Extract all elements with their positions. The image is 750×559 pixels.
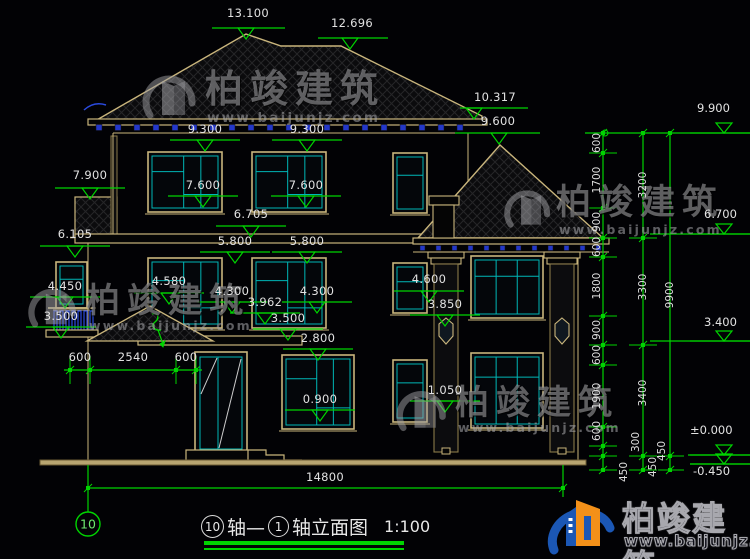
level-label: 5.800 [218, 236, 252, 248]
level-label: 13.100 [227, 8, 269, 20]
level-label: 4.600 [412, 274, 446, 286]
dim-label: 3300 [638, 274, 649, 301]
title-text: 轴立面图 [292, 513, 368, 540]
level-label: 7.900 [73, 170, 107, 182]
level-label: 1.050 [428, 385, 462, 397]
dim-label: 1700 [592, 167, 603, 194]
dim-label: 600 [592, 421, 603, 441]
level-label: 3.500 [271, 313, 305, 325]
level-label: ±0.000 [690, 425, 733, 437]
level-label: 9.600 [481, 116, 515, 128]
level-label: 3.850 [428, 299, 462, 311]
level-label: 9.300 [188, 124, 222, 136]
level-label: 5.800 [290, 236, 324, 248]
axis-circle-1: 1 [268, 516, 289, 537]
title-underline [204, 541, 404, 545]
level-label: 10.317 [474, 92, 516, 104]
dim-label: 450 [648, 457, 659, 477]
dim-label: 1800 [592, 273, 603, 300]
level-label: 7.600 [186, 180, 220, 192]
level-label: 6.105 [58, 229, 92, 241]
company-logo-url: www.baijunjz.com [624, 532, 750, 550]
level-label: 3.400 [704, 317, 737, 329]
level-label: 0.900 [303, 394, 337, 406]
dim-label: 600 [592, 237, 603, 257]
level-label: 3.962 [248, 297, 282, 309]
dim-label: 3200 [638, 172, 649, 199]
title-scale: 1:100 [384, 517, 430, 536]
level-label: 9.900 [697, 103, 730, 115]
level-label: 6.700 [704, 209, 737, 221]
axis-circle-10: 10 [201, 515, 224, 538]
level-label: 9.300 [290, 124, 324, 136]
level-label: 12.696 [331, 18, 373, 30]
dim-label: 1900 [592, 383, 603, 410]
axis-bubble-number: 10 [80, 517, 96, 532]
level-label: 4.580 [152, 276, 186, 288]
dim-label: 600 [175, 352, 198, 364]
dim-label: 900 [592, 320, 603, 340]
dim-label: 3400 [638, 380, 649, 407]
level-label: 4.450 [48, 281, 82, 293]
level-label: 3.500 [44, 311, 78, 323]
level-label: 2.800 [301, 333, 335, 345]
dim-label: 9900 [665, 282, 676, 309]
title-underline [204, 548, 404, 550]
dim-label: 450 [619, 462, 630, 482]
dim-label: 900 [592, 212, 603, 232]
dim-label: 600 [592, 133, 603, 153]
level-label: 4.300 [215, 286, 249, 298]
dim-label: 600 [69, 352, 92, 364]
level-label: 6.705 [234, 209, 268, 221]
dim-label: 300 [631, 432, 642, 452]
cad-elevation-canvas: 柏竣建筑 www.baijunjz.com 柏竣建筑 www.baijunjz.… [0, 0, 750, 559]
level-label: 4.300 [300, 286, 334, 298]
dim-label-total-width: 14800 [306, 472, 344, 484]
title-text: 轴— [227, 513, 265, 540]
level-label: -0.450 [693, 466, 730, 478]
dim-label: 600 [592, 345, 603, 365]
dim-label: 2540 [118, 352, 148, 364]
drawing-title: 10 轴— 1 轴立面图 1:100 [198, 513, 430, 540]
level-label: 7.600 [289, 180, 323, 192]
